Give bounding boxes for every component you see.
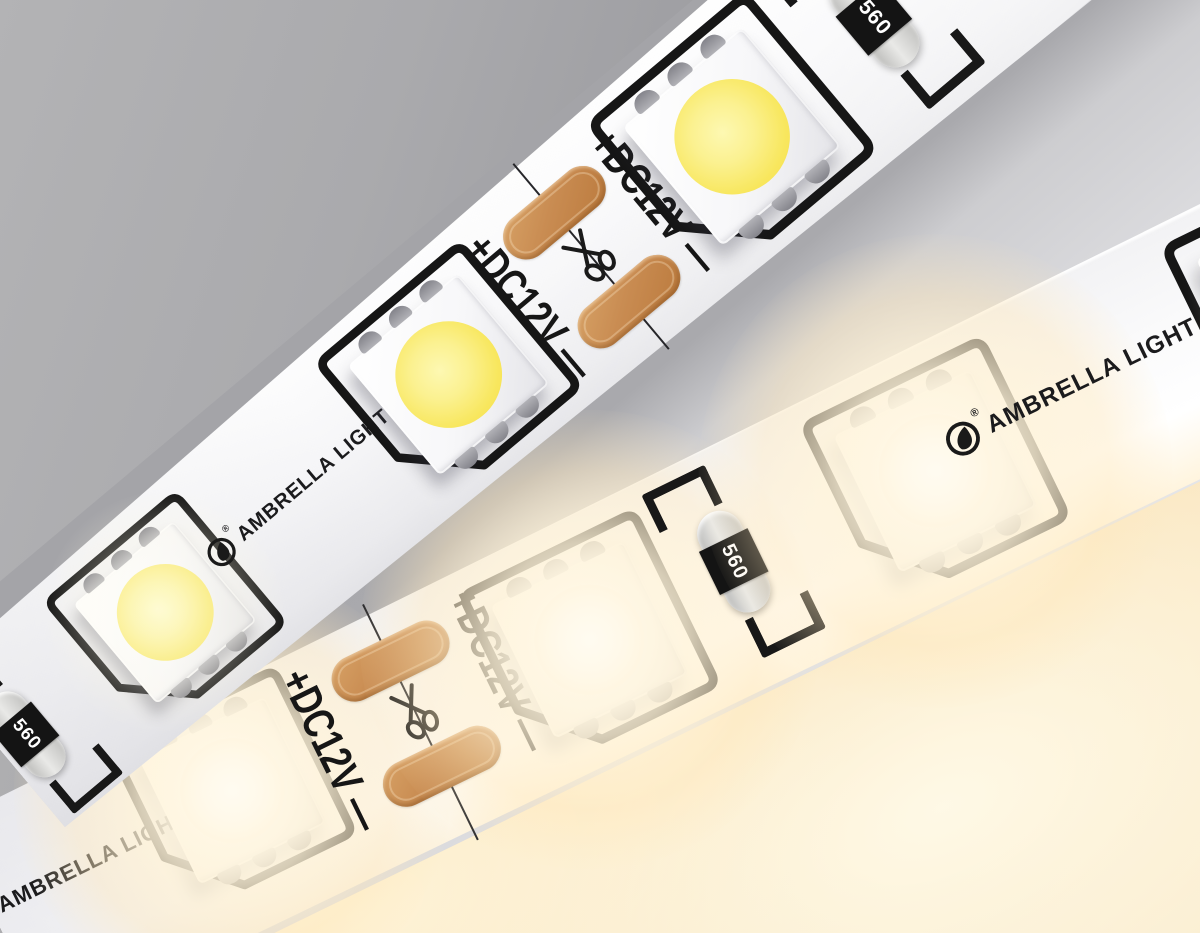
led-strip-product-photo: ® AMBRELLA LIGHT +DC12V —: [0, 0, 1200, 933]
resistor-value: 560: [852, 0, 895, 40]
resistor-value: 560: [7, 715, 45, 754]
led-emitter: [516, 566, 663, 713]
resistor: 560: [0, 683, 74, 786]
resistor-band: 560: [699, 528, 769, 595]
resistor: 560: [689, 503, 778, 620]
resistor-band: 560: [0, 701, 59, 767]
resistor-band: 560: [836, 0, 913, 56]
resistor-value: 560: [715, 540, 752, 583]
